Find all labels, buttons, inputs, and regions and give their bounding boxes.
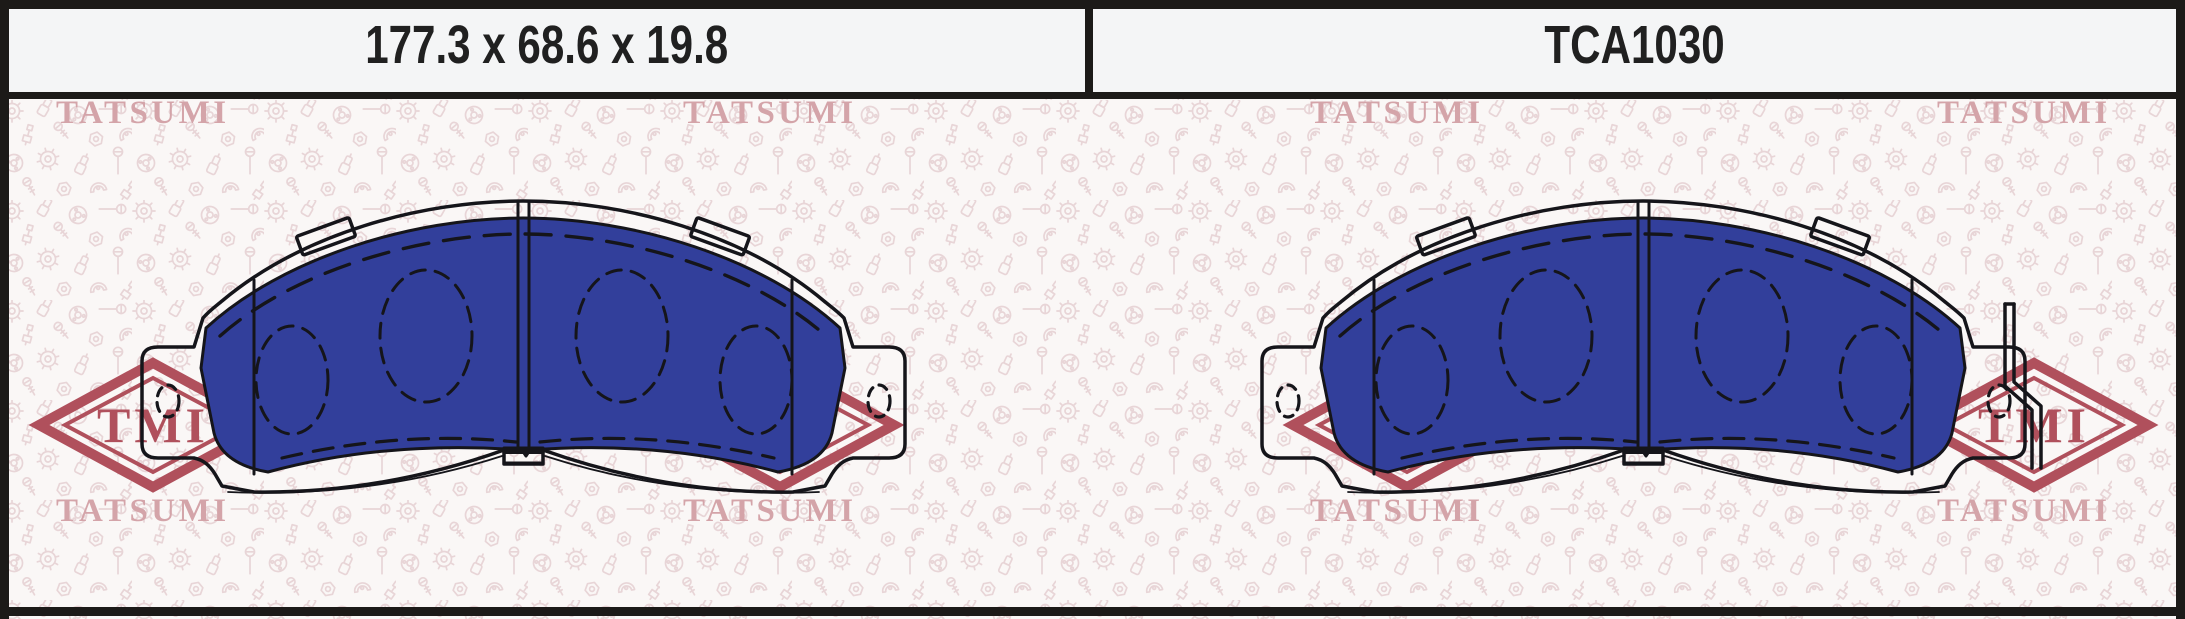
brand-watermark-text: TATSUMI (1310, 493, 1484, 529)
brand-watermark-text: TATSUMI (683, 493, 857, 529)
pad-dimensions-label: 177.3 x 68.6 x 19.8 (365, 14, 728, 76)
brand-watermark-text: TATSUMI (1937, 493, 2111, 529)
brand-watermark-text: TATSUMI (56, 95, 230, 131)
frame-border-left (0, 0, 9, 619)
header-divider (1085, 0, 1093, 99)
frame-border-right (2176, 0, 2185, 619)
frame-border-bottom (0, 607, 2185, 616)
tmi-logo-text: TMI (1978, 397, 2090, 453)
brand-watermark-text: TATSUMI (1937, 95, 2111, 131)
brand-watermark-text: TATSUMI (56, 493, 230, 529)
header-cell-dimensions: 177.3 x 68.6 x 19.8 (9, 9, 1085, 92)
part-number-label: TCA1030 (1544, 14, 1724, 76)
header-cell-part-number: TCA1030 (1093, 9, 2176, 92)
tmi-logo-text: TMI (97, 397, 209, 453)
brand-watermark-text: TATSUMI (683, 95, 857, 131)
catalog-product-image: TATSUMI TATSUMI TATSUMI TATSUMI TATSUMI … (0, 0, 2185, 619)
header-bottom-border (0, 92, 2185, 99)
brand-watermark-text: TATSUMI (1310, 95, 1484, 131)
